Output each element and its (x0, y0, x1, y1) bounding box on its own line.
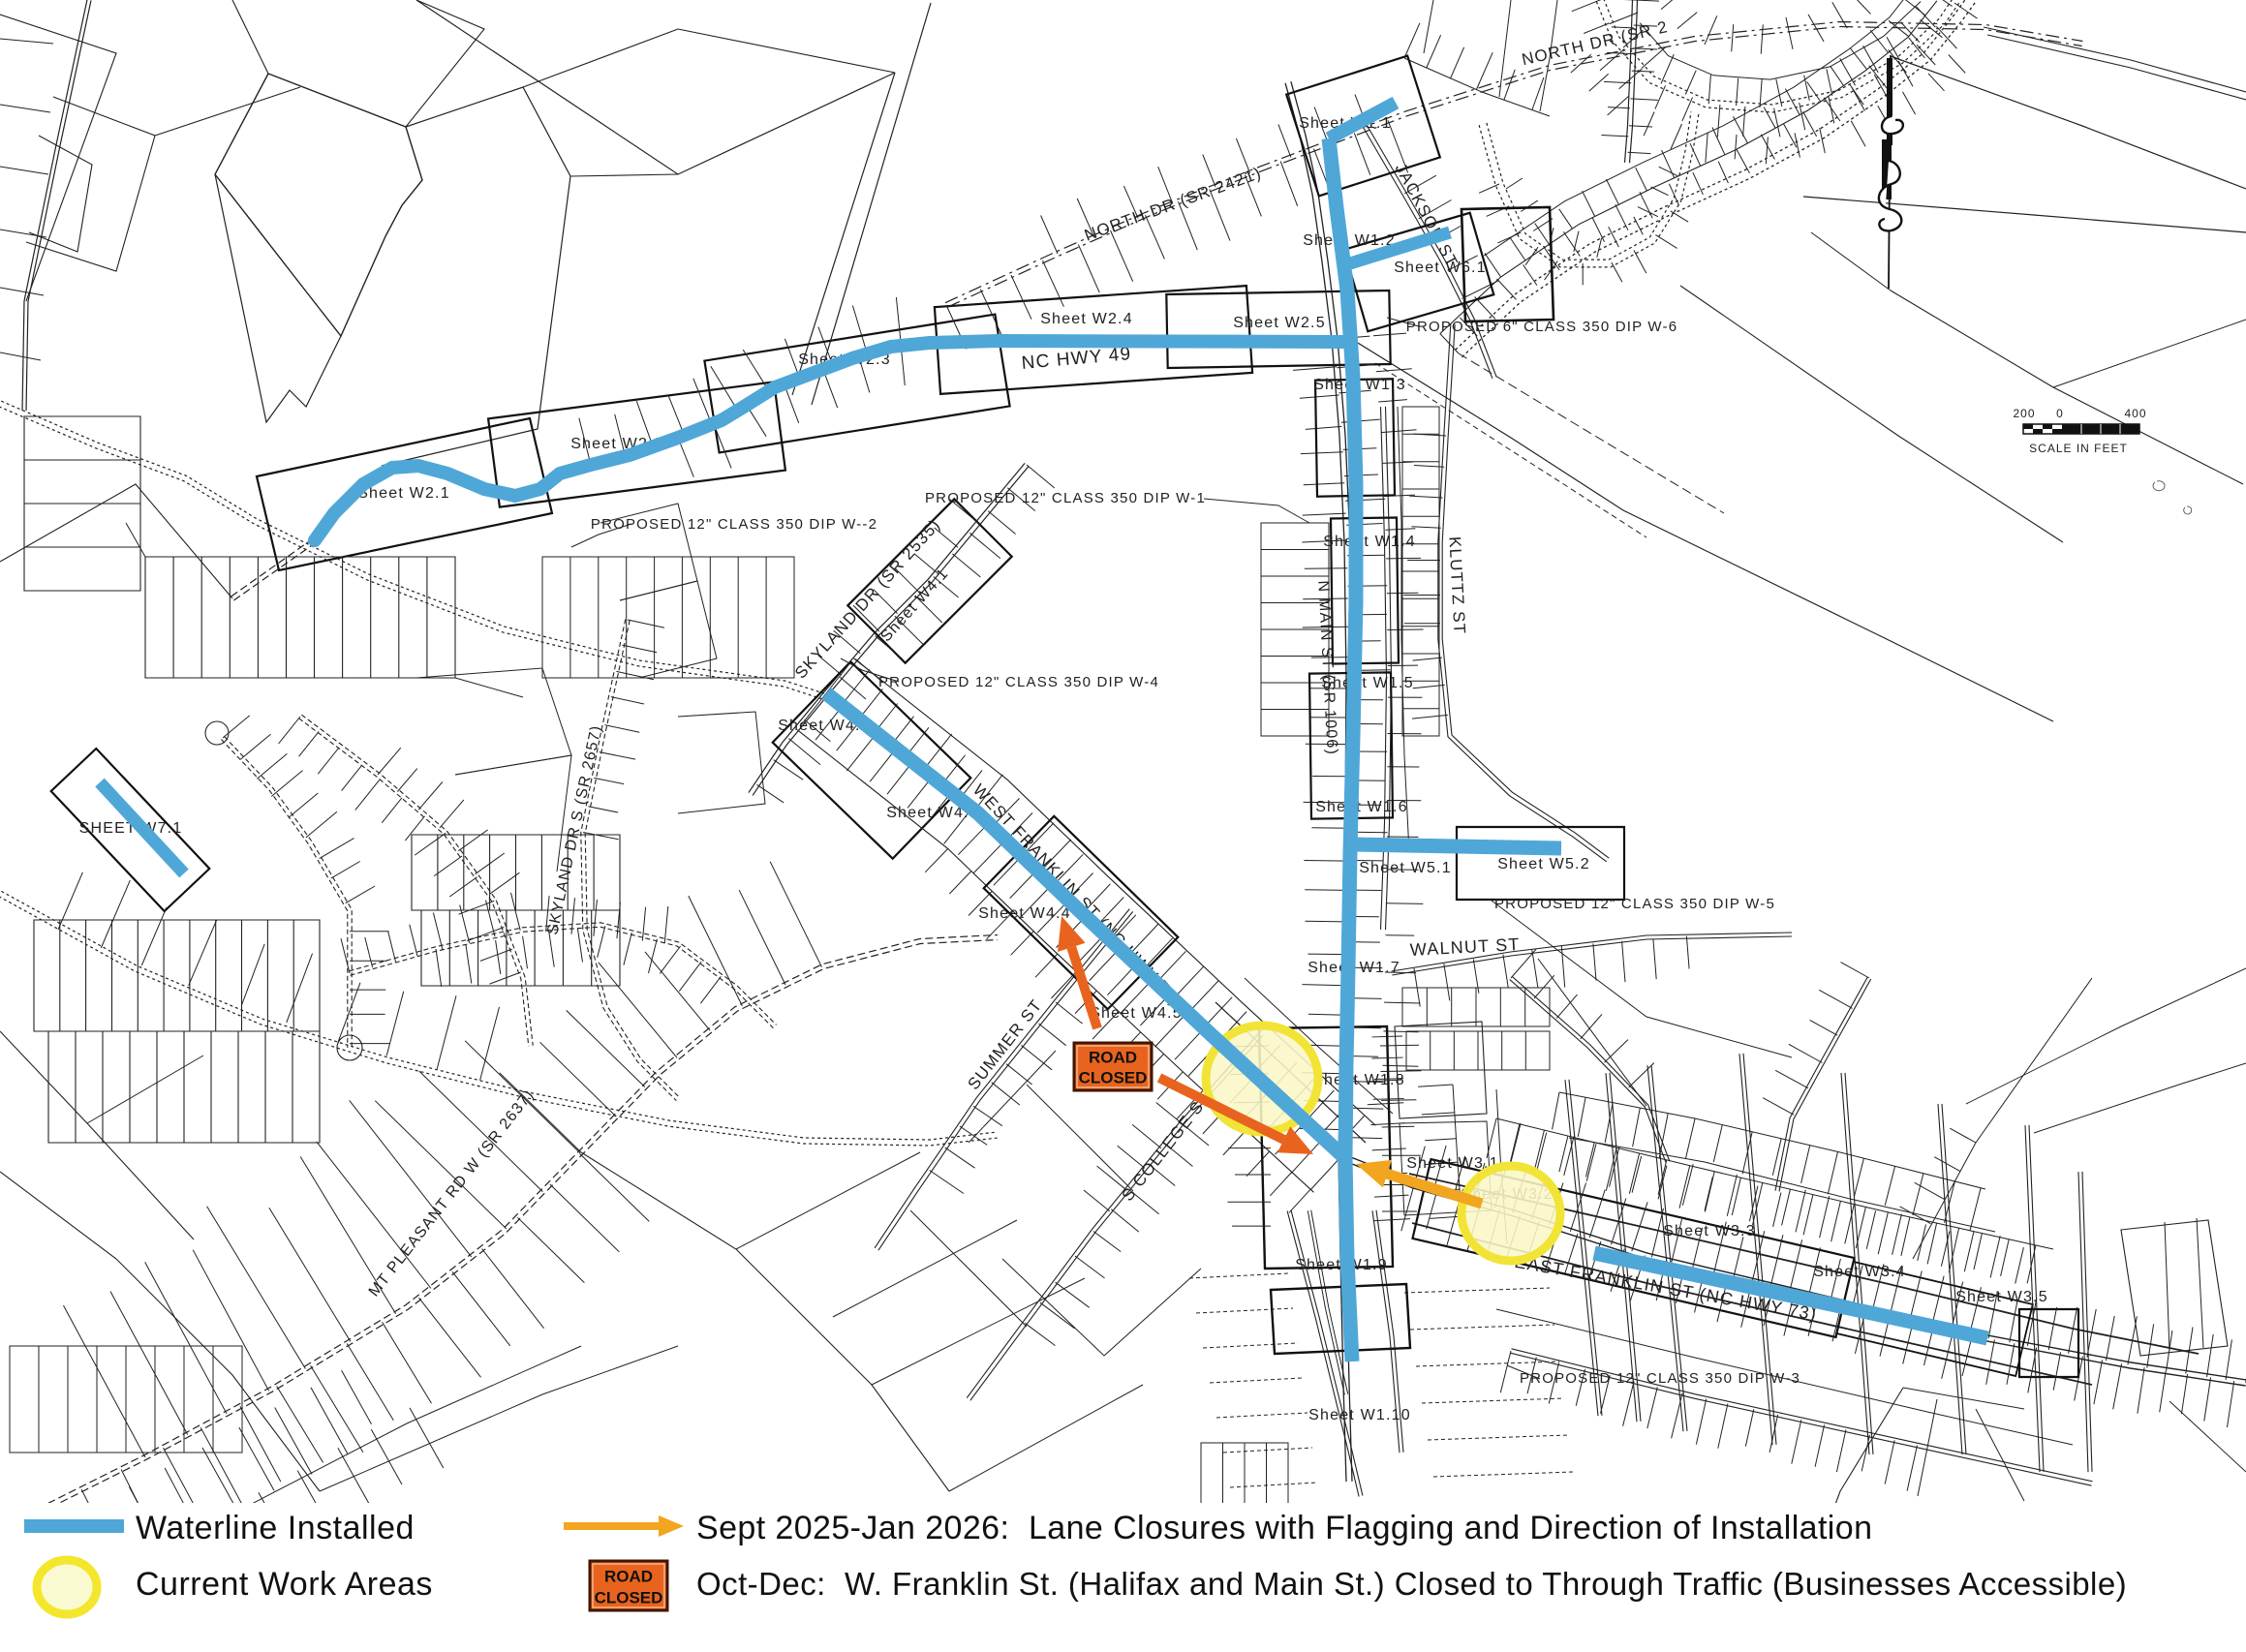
svg-text:Sheet W1.6: Sheet W1.6 (1315, 799, 1408, 815)
svg-text:Sheet W1.2: Sheet W1.2 (1303, 232, 1396, 249)
svg-text:PROPOSED 12" CLASS 350 DIP W-5: PROPOSED 12" CLASS 350 DIP W-5 (1494, 896, 1775, 912)
svg-text:Oct-Dec: W. Franklin St. (Hal: Oct-Dec: W. Franklin St. (Halifax and Ma… (696, 1566, 2127, 1602)
svg-text:SCALE IN FEET: SCALE IN FEET (2029, 442, 2128, 455)
svg-text:Sheet W3.3: Sheet W3.3 (1663, 1223, 1756, 1239)
svg-text:Sheet W3.5: Sheet W3.5 (1955, 1289, 2048, 1305)
svg-text:ROAD: ROAD (604, 1567, 653, 1585)
svg-text:PROPOSED 12" CLASS 350 DIP W--: PROPOSED 12" CLASS 350 DIP W--2 (591, 516, 877, 533)
svg-text:Waterline Installed: Waterline Installed (136, 1510, 415, 1546)
svg-text:Sept 2025-Jan 2026: Lane Clos: Sept 2025-Jan 2026: Lane Closures with F… (696, 1510, 1872, 1546)
svg-text:ROAD: ROAD (1089, 1049, 1137, 1067)
svg-text:Sheet W3.4: Sheet W3.4 (1813, 1264, 1906, 1280)
svg-text:Sheet W2.1: Sheet W2.1 (357, 485, 450, 502)
svg-text:Current Work Areas: Current Work Areas (136, 1566, 433, 1603)
svg-text:Sheet W2.4: Sheet W2.4 (1040, 311, 1133, 327)
svg-text:Sheet W1.4: Sheet W1.4 (1323, 534, 1416, 550)
svg-text:Sheet W1.10: Sheet W1.10 (1308, 1407, 1411, 1423)
svg-text:CLOSED: CLOSED (1079, 1069, 1148, 1087)
svg-text:Sheet W6.1: Sheet W6.1 (1394, 260, 1487, 276)
svg-text:Sheet W5.2: Sheet W5.2 (1497, 856, 1590, 872)
svg-text:PROPOSED 12" CLASS 350 DIP W-3: PROPOSED 12" CLASS 350 DIP W-3 (1520, 1370, 1800, 1387)
svg-text:Sheet W4.5: Sheet W4.5 (1090, 1005, 1183, 1022)
svg-text:Sheet W2.5: Sheet W2.5 (1233, 315, 1326, 331)
svg-text:0: 0 (2056, 407, 2064, 420)
svg-text:Sheet W5.1: Sheet W5.1 (1359, 860, 1452, 876)
svg-text:PROPOSED 12" CLASS 350 DIP W-4: PROPOSED 12" CLASS 350 DIP W-4 (878, 674, 1159, 690)
svg-text:PROPOSED 6" CLASS 350 DIP W-6: PROPOSED 6" CLASS 350 DIP W-6 (1406, 319, 1678, 335)
svg-text:Sheet W1.8: Sheet W1.8 (1312, 1072, 1405, 1088)
svg-text:CLOSED: CLOSED (595, 1588, 663, 1606)
svg-text:PROPOSED 12" CLASS 350 DIP W-1: PROPOSED 12" CLASS 350 DIP W-1 (925, 490, 1206, 506)
svg-text:200: 200 (2013, 407, 2035, 420)
svg-text:Sheet W4.4: Sheet W4.4 (978, 905, 1071, 922)
svg-text:400: 400 (2124, 407, 2146, 420)
